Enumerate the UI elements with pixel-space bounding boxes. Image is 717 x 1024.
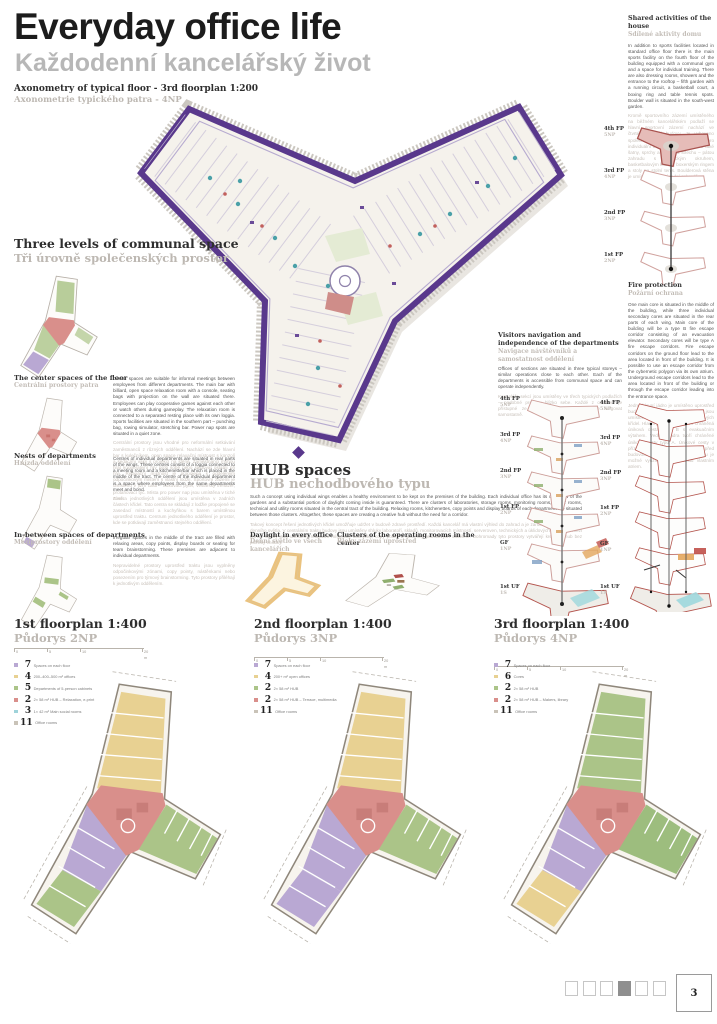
pager-square-2[interactable] [583,981,596,996]
legend-color-chip [14,698,18,702]
inbetween-text-en: Irregular spaces in the middle of the tr… [113,535,235,560]
fire-protection-title-en: Fire protection [628,281,714,289]
legend-color-chip [14,721,18,725]
legend-color-chip [254,663,258,667]
clusters-diagram [340,549,445,611]
plan1-scale-bar: 0 5 10 20 m [14,648,144,657]
plan3-drawing [500,664,712,958]
legend-color-chip [14,710,18,714]
plan3-heading-cz: Půdorys 4NP [494,631,577,645]
sheet-number: 3 [691,988,698,999]
legend-color-chip [494,710,498,714]
legend-color-chip [14,675,18,679]
inbetween-text-cz: Nepravidelné prostory uprostřed traktu j… [113,563,235,588]
legend-color-chip [254,698,258,702]
nests-texts: Centres of individual departments are si… [113,456,235,527]
page-subtitle: Každodenní kancelářský život [15,49,371,78]
daylight-diagram [244,549,322,611]
pager-square-6[interactable] [653,981,666,996]
page-title: Everyday office life [14,6,341,48]
nests-text-cz: Centra jednotlivých oddělení jsou umístě… [113,496,235,527]
legend-color-chip [14,686,18,690]
fire-protection-text-en: One main core is situated in the middle … [628,302,714,400]
plan3-heading-en: 3rd floorplan 1:400 [494,616,629,631]
inbetween-texts: Irregular spaces in the middle of the tr… [113,535,235,587]
fire-protection-title-cz: Požární ochrana [628,290,714,298]
pager-square-3[interactable] [600,981,613,996]
legend-color-chip [494,686,498,690]
item-center-spaces-title-cz: Centrální prostory patra [14,382,99,389]
visitors-title-cz: Navigace návštěvníků a samostatnost oddě… [498,348,622,363]
plan1-heading-cz: Půdorys 2NP [14,631,97,645]
legend-color-chip [494,675,498,679]
three-levels-heading-cz: Tři úrovně společenských prostor [14,251,229,265]
pager-square-4-active[interactable] [618,981,631,996]
visitors-title-en: Visitors navigation and independence of … [498,331,622,347]
presentation-board: Everyday office life Každodenní kancelář… [0,0,717,1024]
legend-color-chip [14,663,18,667]
plan2-heading-en: 2nd floorplan 1:400 [254,616,392,631]
plan1-drawing [20,664,232,958]
legend-color-chip [254,686,258,690]
legend-color-chip [254,675,258,679]
fire-floor-stack: 4th FP5NP 3rd FP4NP 2nd FP3NP 1st FP2NP … [598,394,717,612]
hub-heading-cz: HUB nechodbového typu [250,477,430,492]
legend-color-chip [494,698,498,702]
center-spaces-text-en: Center spaces are suitable for informal … [113,376,235,437]
stack3-drawing [620,394,717,612]
clusters-title-cz: Bloky zázemí uprostřed [337,538,487,546]
item-nests-title-en: Nests of departments [14,452,96,460]
pager-square-1[interactable] [565,981,578,996]
item-nests-title-cz: Hnízda oddělení [14,460,71,467]
visitors-text-en: Offices of sections are situated in thre… [498,366,622,391]
shared-floor-stack: 4th FP5NP 3rd FP4NP 2nd FP3NP 1st FP2NP [602,120,717,285]
legend-color-chip [494,663,498,667]
pager-square-5[interactable] [635,981,648,996]
shared-activities-title-cz: Sdílené aktivity domu [628,31,714,39]
legend-color-chip [254,710,258,714]
plan2-drawing [260,664,472,958]
shared-activities-text-en: In addition to sports facilities located… [628,43,714,111]
three-levels-heading-en: Three levels of communal space [14,236,239,251]
three-levels-diagram [16,268,102,385]
sheet-pager [565,981,670,1001]
sheet-number-box: 3 [676,974,712,1012]
plan1-heading-en: 1st floorplan 1:400 [14,616,147,631]
nests-text-en: Centres of individual departments are si… [113,456,235,493]
plan2-heading-cz: Půdorys 3NP [254,631,337,645]
stack1-drawing [628,120,717,285]
item-inbetween-title-cz: Meziprostory oddělení [14,539,92,546]
item-center-spaces-title-en: The center spaces of the floor [14,374,127,382]
visitors-floor-stack: 4th FP5NP 3rd FP4NP 2nd FP3NP 1st FP2NP … [482,392,616,616]
shared-activities-title-en: Shared activities of the house [628,14,714,30]
